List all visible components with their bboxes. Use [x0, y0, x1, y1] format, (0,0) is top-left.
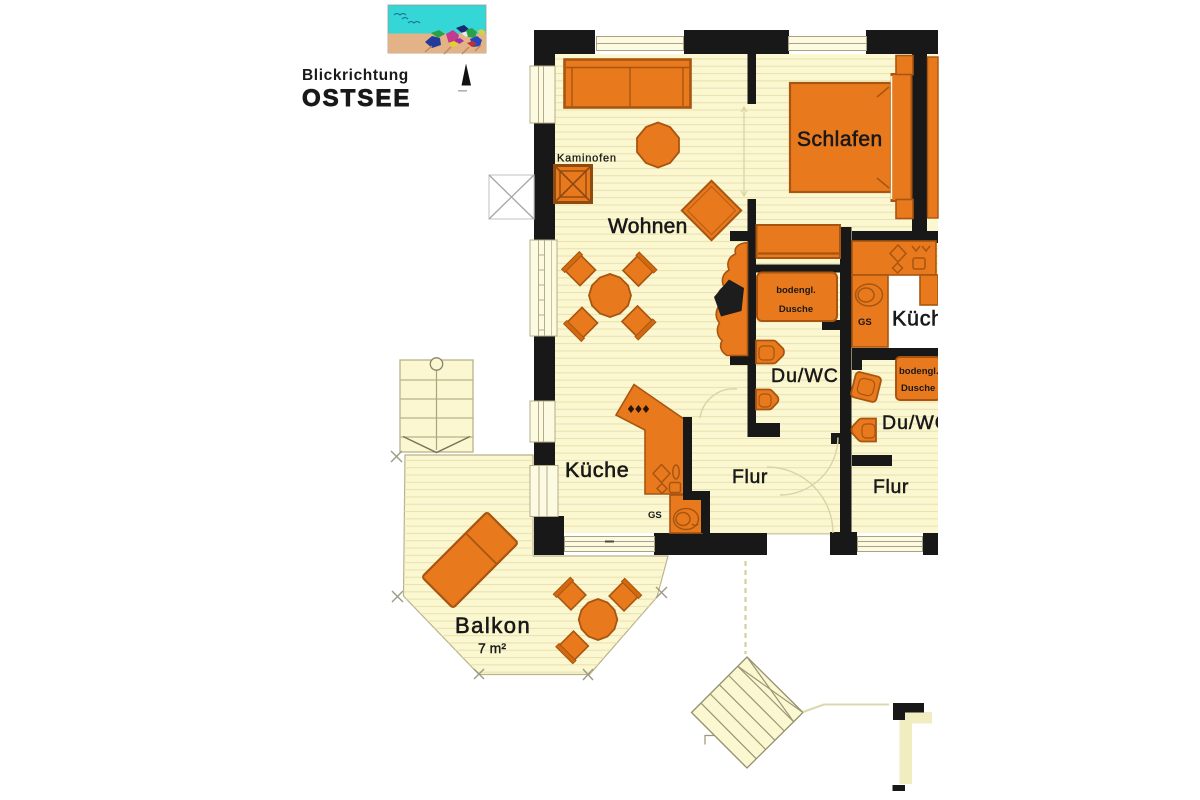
svg-text:OSTSEE: OSTSEE	[302, 85, 411, 112]
svg-text:Kaminofen: Kaminofen	[557, 153, 617, 165]
svg-text:Wohnen: Wohnen	[608, 215, 688, 238]
svg-text:GS: GS	[858, 317, 872, 328]
svg-text:GS: GS	[648, 510, 662, 521]
svg-text:Balkon: Balkon	[455, 613, 531, 638]
svg-text:Blickrichtung: Blickrichtung	[302, 67, 409, 84]
svg-text:Küche: Küche	[892, 307, 956, 331]
svg-text:bodengl.: bodengl.	[899, 366, 939, 377]
svg-text:Flur: Flur	[732, 466, 768, 488]
svg-text:Dusche: Dusche	[901, 383, 935, 394]
svg-text:Küche: Küche	[565, 458, 629, 482]
svg-text:Schlafen: Schlafen	[797, 128, 883, 151]
svg-text:Flur: Flur	[873, 476, 909, 498]
svg-text:bodengl.: bodengl.	[776, 285, 816, 296]
svg-text:Du/WC: Du/WC	[771, 365, 839, 387]
svg-text:Du/WC: Du/WC	[882, 412, 950, 434]
svg-text:Dusche: Dusche	[779, 304, 813, 315]
svg-text:7 m²: 7 m²	[478, 640, 506, 656]
